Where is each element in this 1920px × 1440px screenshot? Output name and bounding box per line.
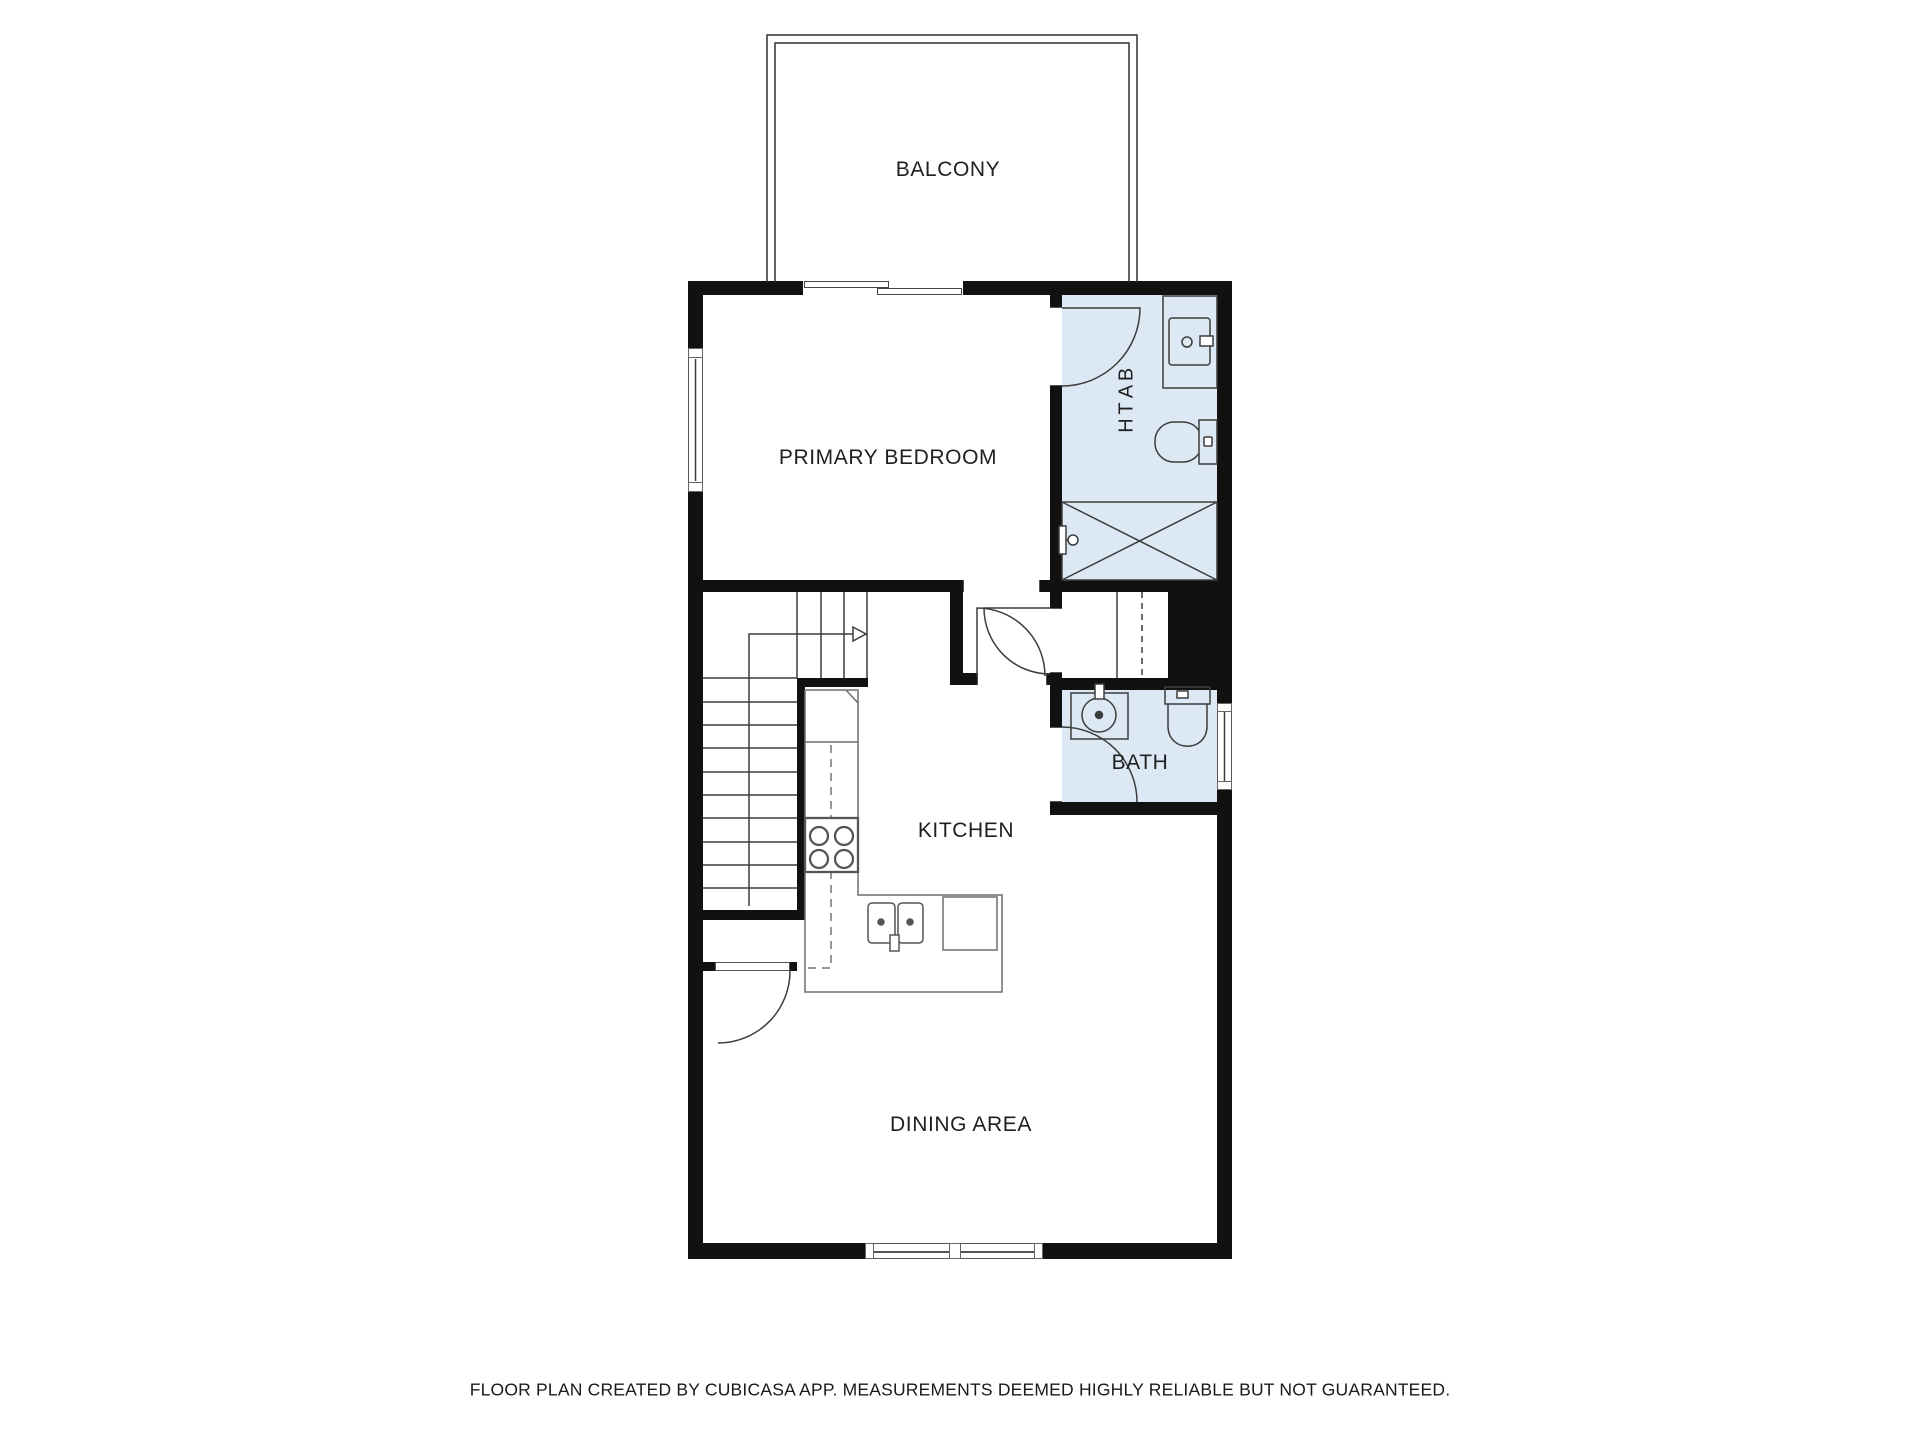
toilet-upper [1155,420,1217,464]
door-swing-vestibule-b [984,608,1050,674]
faucet [890,935,899,951]
shower [1062,502,1217,580]
sink-vanity-upper [1163,296,1217,388]
footer-disclaimer: FLOOR PLAN CREATED BY CUBICASA APP. MEAS… [470,1380,1451,1401]
refrigerator [846,690,858,703]
door-swing-under-stair-closet [718,971,790,1043]
shower-valve [1059,526,1078,554]
faucet [1200,336,1213,346]
kitchen-label: KITCHEN [918,819,1014,843]
linework [0,0,1920,1440]
toilet-lower [1165,687,1210,746]
door-swing-vestibule-a [977,608,1045,676]
bath-lower-label: BATH [1112,751,1169,775]
wardrobe [1117,592,1142,678]
floor-plan: BALCONY PRIMARY BEDROOM BATH KITCHEN BAT… [0,0,1920,1440]
bath-upper-label: BATH [1115,366,1139,434]
stove [805,818,858,872]
dining-area-label: DINING AREA [890,1113,1032,1137]
faucet [1095,684,1104,699]
sink-vanity-lower [1071,684,1128,739]
counter-appliance [943,897,997,950]
balcony-label: BALCONY [896,158,1001,182]
primary-bedroom-label: PRIMARY BEDROOM [779,446,997,470]
double-sink [868,903,923,951]
